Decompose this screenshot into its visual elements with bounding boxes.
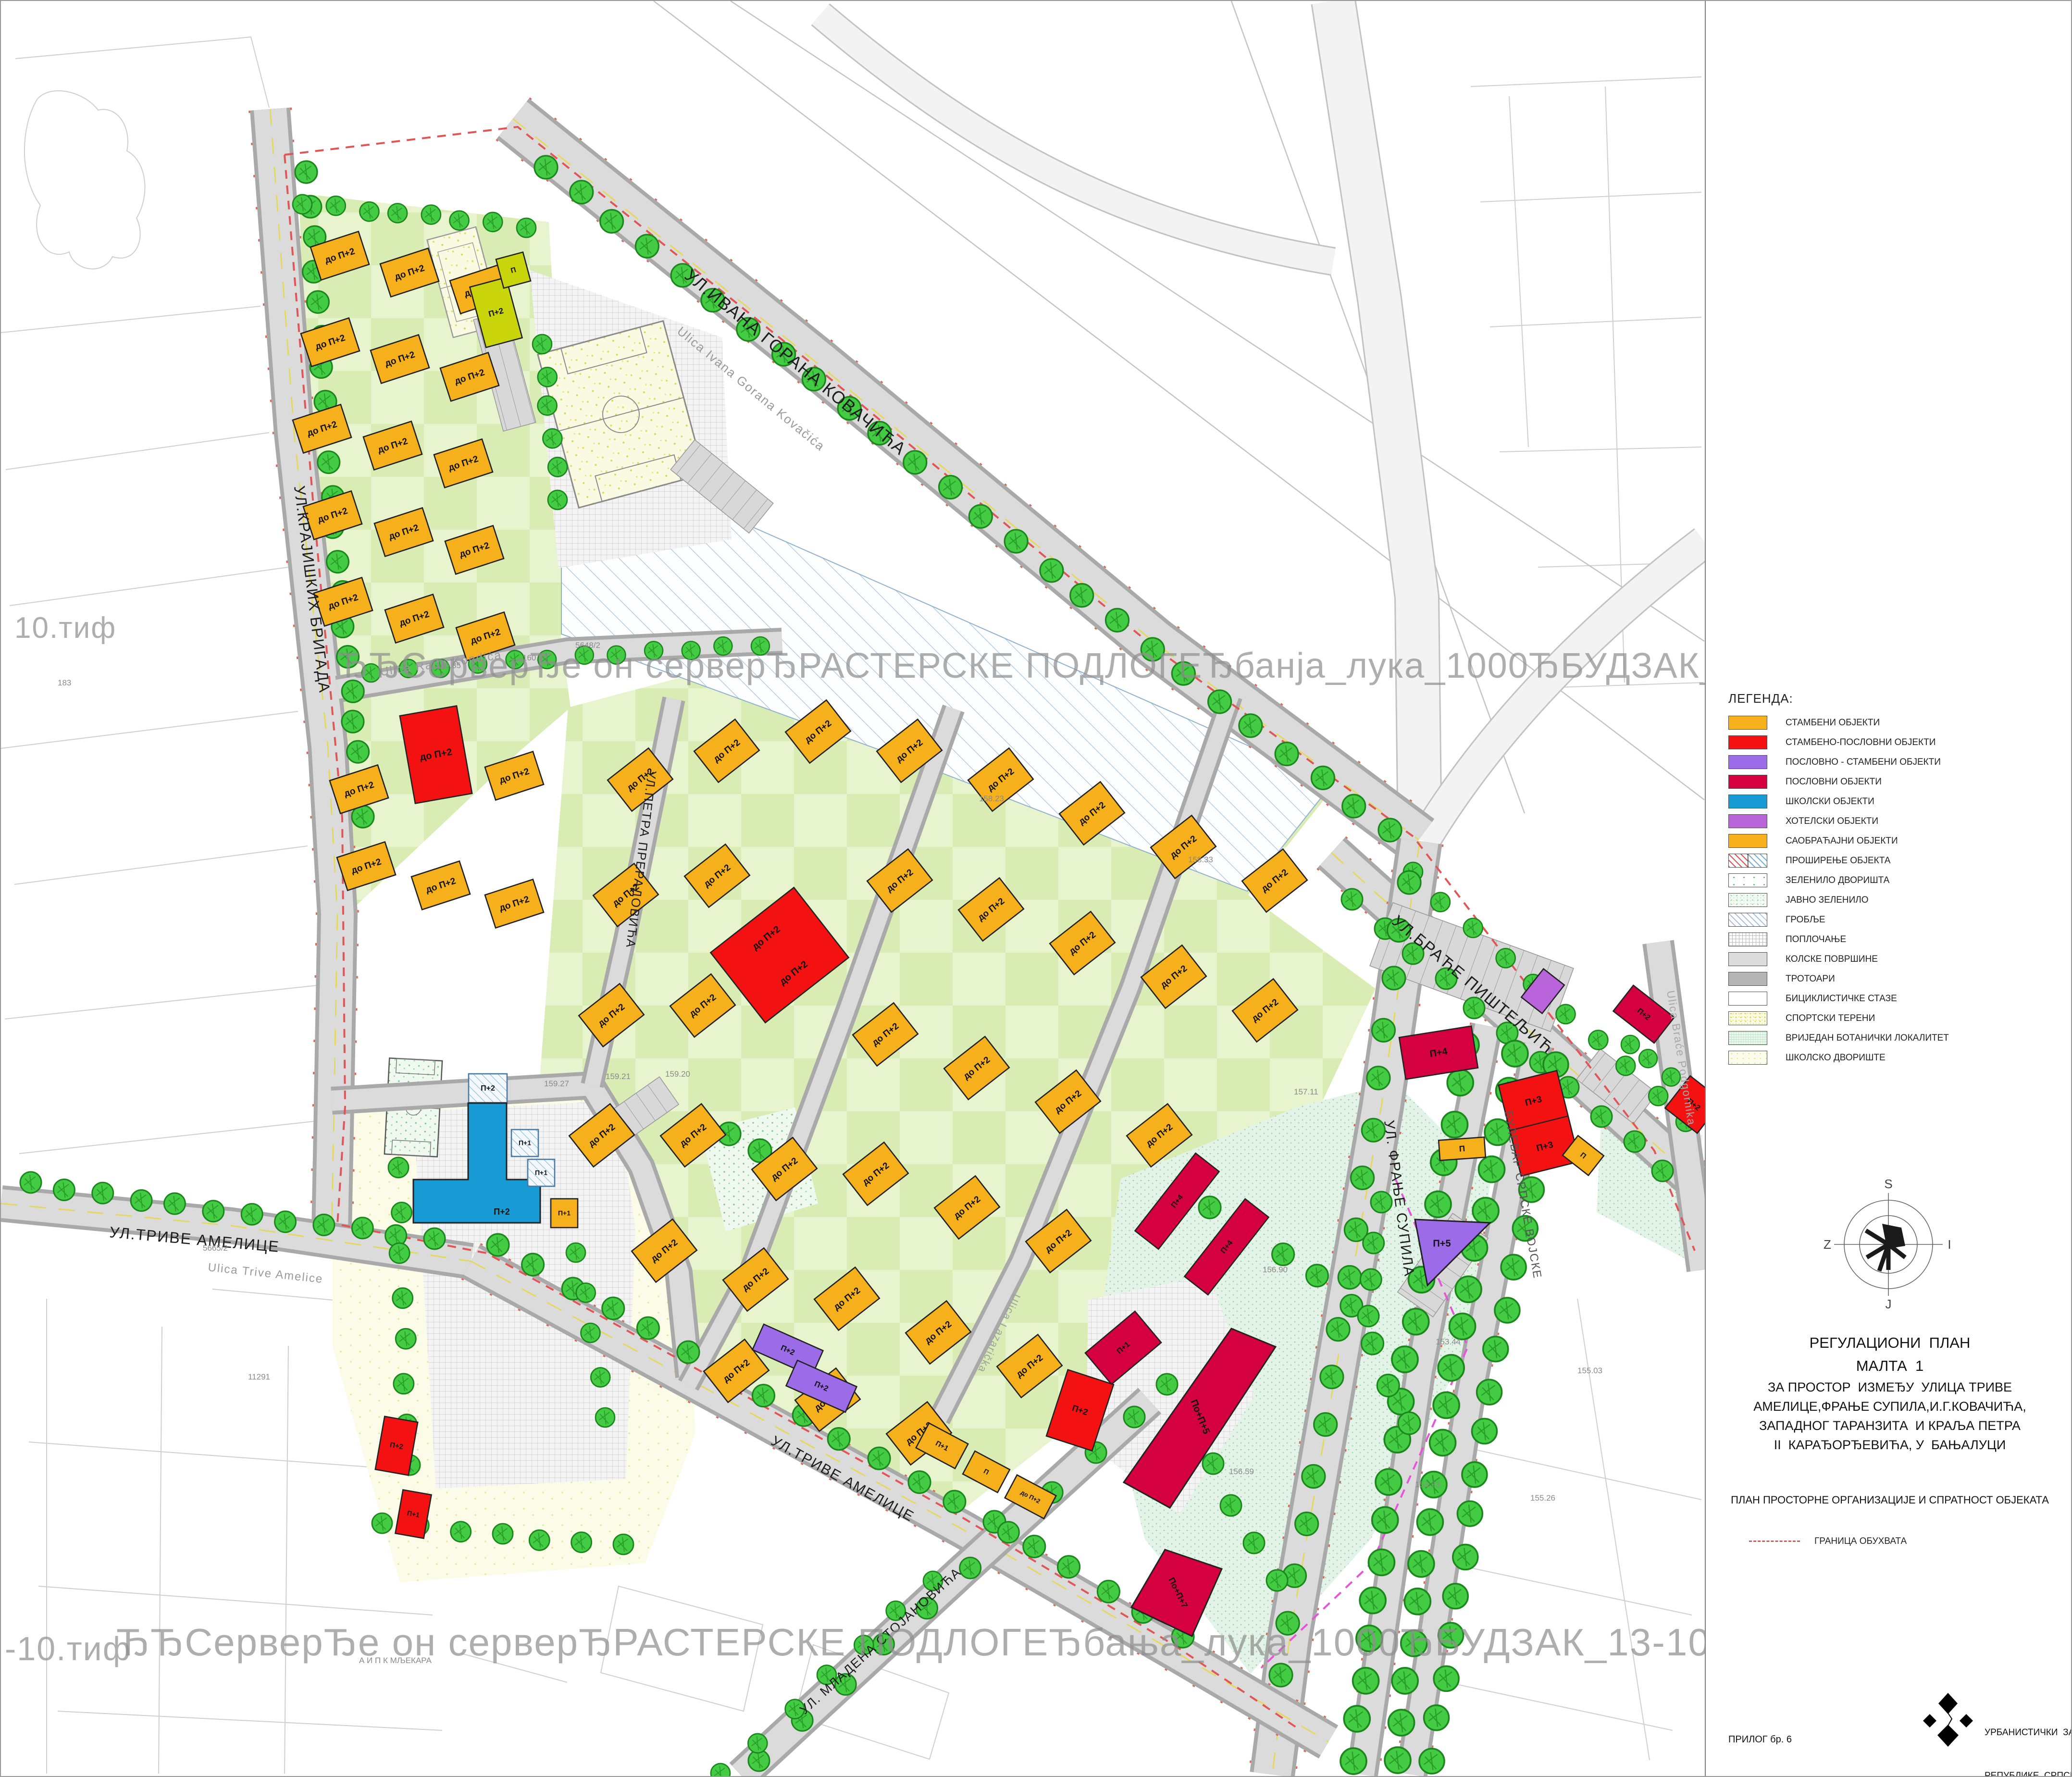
tree-icon [1314, 1413, 1337, 1436]
tree-icon [1243, 1532, 1265, 1553]
tree-icon [529, 1530, 549, 1550]
tree-icon [1097, 1580, 1119, 1603]
tree-icon [347, 741, 369, 763]
legend-swatch-5 [1728, 814, 1767, 828]
tree-icon [1311, 766, 1334, 789]
legend-item-label: ПОСЛОВНО - СТАМБЕНИ ОБЈЕКТИ [1786, 757, 1941, 768]
spot-label: 159.27 [544, 1079, 569, 1088]
spot-label: 183 [58, 678, 71, 687]
parcel-line [25, 91, 145, 269]
tree-icon [1239, 714, 1262, 737]
tree-icon [293, 195, 312, 214]
tree-icon [1362, 1332, 1384, 1354]
legend-item-label: САОБРАЋАЈНИ ОБЈЕКТИ [1786, 836, 1898, 846]
tree-icon [517, 218, 536, 237]
plan-sheet: до П+2до П+2до П+2до П+2до П+2до П+2до П… [0, 0, 2072, 1777]
building-st: до П+2 [411, 861, 470, 910]
parcel-line [1509, 96, 1528, 447]
tree-icon [1338, 1266, 1361, 1289]
tree-icon [566, 1243, 585, 1262]
legend-item-label: ЈАВНО ЗЕЛЕНИЛО [1786, 895, 1869, 906]
tree-icon [748, 1734, 767, 1753]
compass-east-label: I [1948, 1237, 1951, 1252]
tree-icon [1591, 1106, 1612, 1127]
spot-label: 159.20 [665, 1069, 690, 1079]
legend-item: ШКОЛСКО ДВОРИШТЕ [1728, 1048, 2055, 1068]
legend-swatch-10 [1728, 913, 1767, 927]
legend-item: ПОПЛОЧАЊЕ [1728, 930, 2055, 949]
legend-swatch-8 [1728, 873, 1767, 887]
tree-icon [1220, 1495, 1241, 1516]
tree-icon [1447, 1069, 1473, 1095]
tree-icon [372, 1513, 392, 1533]
tree-icon [1363, 1232, 1384, 1254]
parcel-line [19, 1120, 327, 1154]
tree-icon [1372, 1507, 1398, 1533]
legend-swatch-17 [1728, 1051, 1767, 1065]
tree-icon [1501, 1255, 1526, 1280]
plan-subtitle: ПЛАН ПРОСТОРНЕ ОРГАНИЗАЦИЈЕ И СПРАТНОСТ … [1715, 1494, 2064, 1506]
tree-icon [1556, 1005, 1575, 1024]
tree-icon [392, 1203, 412, 1223]
legend-item: ХОТЕЛСКИ ОБЈЕКТИ [1728, 811, 2055, 831]
title-column: ЛЕГЕНДА: СТАМБЕНИ ОБЈЕКТИСТАМБЕНО-ПОСЛОВ… [1705, 1, 2072, 1777]
tree-icon [1398, 871, 1421, 894]
tree-icon [1462, 1462, 1487, 1487]
tree-icon [1377, 1374, 1399, 1396]
legend-item-label: ХОТЕЛСКИ ОБЈЕКТИ [1786, 816, 1878, 827]
tree-icon [939, 476, 962, 499]
plan-title: РЕГУЛАЦИОНИ ПЛАН [1715, 1331, 2064, 1354]
legend-item: КОЛСКЕ ПОВРШИНЕ [1728, 949, 2055, 969]
tree-icon [450, 211, 469, 230]
building-label: П+5 [1433, 1238, 1451, 1249]
tree-icon [570, 181, 593, 204]
tree-icon [548, 458, 567, 477]
compass-west-label: Z [1824, 1237, 1831, 1252]
tree-icon [1472, 1418, 1497, 1443]
tree-icon [600, 210, 623, 233]
tree-icon [1443, 1584, 1468, 1609]
parcel-line [1, 711, 298, 748]
legend-item-label: ЗЕЛЕНИЛО ДВОРИШТА [1786, 875, 1889, 886]
tree-icon [1502, 1041, 1528, 1067]
legend-item-label: ПОСЛОВНИ ОБЈЕКТИ [1786, 777, 1882, 787]
tree-icon [1199, 1196, 1221, 1218]
tree-icon [1208, 690, 1231, 713]
tree-icon [1455, 1276, 1481, 1302]
organization-block: УРБАНИСТИЧКИ ЗАВОД РЕПУБЛИКЕ СРПСКЕ,а.д.… [1985, 1697, 2072, 1777]
building-label: П+1 [558, 1209, 571, 1217]
tree-icon [1367, 1067, 1390, 1090]
parcel-line [6, 433, 269, 470]
legend-item-label: ВРИЈЕДАН БОТАНИЧКИ ЛОКАЛИТЕТ [1786, 1033, 1949, 1044]
tree-icon [1430, 1429, 1456, 1455]
tree-icon [92, 1182, 113, 1204]
tree-icon [1005, 530, 1028, 553]
spot-label: 153.23 [1415, 1480, 1440, 1489]
watermark-top: ЂЂСерверЂе он серверЂРАСТЕРСКЕ ПОДЛОГЕЂб… [337, 646, 1937, 685]
tree-icon [241, 1204, 262, 1225]
parcel-line [38, 1586, 433, 1615]
tree-icon [1457, 1501, 1482, 1526]
tree-icon [1483, 1337, 1508, 1362]
tree-icon [1652, 1160, 1673, 1181]
legend-swatch-14 [1728, 992, 1767, 1006]
parcel-line [15, 37, 269, 108]
legend-swatch-15 [1728, 1011, 1767, 1025]
tree-icon [1105, 609, 1129, 632]
tree-icon [20, 1172, 41, 1193]
tree-icon [396, 1329, 416, 1349]
plan-scope-line-4: II КАРАЂОРЂЕВИЋА, У БАЊАЛУЦИ [1715, 1435, 2064, 1454]
legend-item: ВРИЈЕДАН БОТАНИЧКИ ЛОКАЛИТЕТ [1728, 1028, 2055, 1048]
plan-scope-line-2: АМЕЛИЦЕ,ФРАЊЕ СУПИЛА,И.Г.КОВАЧИЋА, [1715, 1397, 2064, 1416]
tree-icon [969, 505, 992, 528]
tree-icon [1424, 1705, 1449, 1730]
tree-icon [1203, 1453, 1224, 1474]
tree-icon [1385, 1747, 1411, 1773]
tree-icon [1272, 1243, 1294, 1266]
tree-icon [1372, 1019, 1395, 1042]
spot-label: 156.59 [1229, 1467, 1254, 1476]
legend-item-label: ШКОЛСКО ДВОРИШТЕ [1786, 1053, 1886, 1063]
legend-swatch-4 [1728, 795, 1767, 808]
tree-icon [522, 1254, 544, 1276]
legend-item: ТРОТОАРИ [1728, 969, 2055, 989]
boundary-dash-icon [1749, 1541, 1800, 1542]
legend-swatch-7 [1728, 854, 1767, 868]
compass-north-label: S [1884, 1180, 1892, 1191]
tree-icon [591, 1368, 610, 1387]
plan-name: МАЛТА 1 [1715, 1354, 2064, 1378]
legend-swatch-12 [1728, 952, 1767, 966]
compass-rose: S J Z I [1824, 1180, 1953, 1309]
legend-item: ШКОЛСКИ ОБЈЕКТИ [1728, 792, 2055, 811]
tree-icon [828, 1428, 850, 1450]
tree-icon [53, 1180, 74, 1201]
footer-attachment: ПРИЛОГ бр. 6 РАЗМЈЕРА 1:1000 [1728, 1702, 1810, 1777]
spot-label: 11291 [248, 1372, 270, 1381]
spot-label: 156.90 [1263, 1265, 1288, 1274]
tree-icon [1433, 1392, 1459, 1418]
tree-icon [1442, 1112, 1468, 1138]
spot-label: 5665/2 [203, 1243, 228, 1253]
tree-icon [394, 1374, 414, 1394]
legend-swatch-3 [1728, 775, 1767, 789]
tree-icon [1306, 1265, 1328, 1287]
parcel-line [5, 985, 317, 1019]
title-block: РЕГУЛАЦИОНИ ПЛАН МАЛТА 1 ЗА ПРОСТОР ИЗМЕ… [1715, 1331, 2064, 1547]
tree-icon [576, 1283, 596, 1303]
transit-line [731, 1, 1704, 641]
tree-icon [1340, 1748, 1366, 1774]
legend-item: ПРОШИРЕЊЕ ОБЈЕКТА [1728, 851, 2055, 870]
tree-icon [635, 235, 658, 258]
tree-icon [1275, 743, 1298, 766]
tree-icon [1376, 1469, 1402, 1495]
tree-icon [360, 202, 379, 221]
legend-swatch-13 [1728, 972, 1767, 986]
parcel-line [58, 1711, 442, 1730]
tree-icon [908, 1471, 931, 1493]
legend-swatch-16 [1728, 1031, 1767, 1045]
tree-icon [1588, 1031, 1608, 1050]
compass-south-label: J [1886, 1297, 1892, 1309]
tree-icon [1156, 1374, 1178, 1395]
building-label: П+2 [494, 1207, 509, 1217]
tree-icon [538, 396, 557, 415]
building-pr: П+2 [469, 1074, 507, 1103]
building-label: П [1459, 1144, 1465, 1154]
tree-icon [164, 1193, 185, 1214]
legend-item-label: СПОРТСКИ ТЕРЕНИ [1786, 1013, 1875, 1024]
parcel-line [1500, 447, 1701, 452]
tree-icon [1378, 819, 1402, 842]
legend-item: ПОСЛОВНО - СТАМБЕНИ ОБЈЕКТИ [1728, 752, 2055, 772]
tree-icon [1389, 1710, 1414, 1736]
parcel-line [159, 1327, 162, 1774]
legend-item: САОБРАЋАЈНИ ОБЈЕКТИ [1728, 831, 2055, 851]
spot-label: 157.11 [1294, 1087, 1318, 1096]
tree-icon [1434, 1666, 1459, 1691]
tree-icon [342, 710, 364, 733]
tree-icon [534, 156, 558, 179]
building-st: П [1439, 1137, 1486, 1161]
legend-item: СТАМБЕНИ ОБЈЕКТИ [1728, 713, 2055, 733]
tree-icon [868, 1447, 890, 1469]
building-st: П+1 [551, 1199, 578, 1228]
legend-item: БИЦИКЛИСТИЧКЕ СТАЗЕ [1728, 989, 2055, 1008]
tree-icon [1450, 1314, 1476, 1340]
legend-item-label: ТРОТОАРИ [1786, 974, 1835, 984]
attachment-number: ПРИЛОГ бр. 6 [1728, 1732, 1810, 1747]
tree-icon [1477, 1379, 1502, 1404]
tree-icon [1473, 1198, 1499, 1224]
tree-icon [1479, 1156, 1505, 1182]
tree-icon [1266, 1570, 1288, 1591]
street-label: Ulica Trive Amelice [207, 1261, 323, 1286]
tree-icon [1023, 1535, 1045, 1557]
boundary-legend-row: ГРАНИЦА ОБУХВАТА [1715, 1536, 2064, 1547]
legend-item: ПОСЛОВНИ ОБЈЕКТИ [1728, 772, 2055, 792]
tree-icon [1358, 1305, 1379, 1327]
spot-label: 158.23 [979, 794, 1004, 803]
legend-swatch-2 [1728, 755, 1767, 769]
tree-icon [1058, 1556, 1080, 1578]
legend-item-label: СТАМБЕНИ ОБЈЕКТИ [1786, 718, 1880, 728]
tree-icon [1360, 1269, 1381, 1290]
tree-icon [1382, 967, 1405, 990]
legend-swatch-9 [1728, 893, 1767, 907]
peripheral-road [1333, 1, 1420, 840]
tree-icon [1368, 1549, 1394, 1575]
tree-icon [1342, 795, 1365, 818]
tree-icon [1302, 1465, 1325, 1488]
org-line-1: УРБАНИСТИЧКИ ЗАВОД [1985, 1726, 2072, 1740]
spot-label: 159.21 [606, 1072, 631, 1081]
tree-icon [1040, 559, 1063, 582]
building-label: П+1 [519, 1139, 531, 1147]
legend-item: ЈАВНО ЗЕЛЕНИЛО [1728, 890, 2055, 910]
tree-icon [637, 1317, 659, 1339]
parcel-line [1, 306, 261, 333]
tree-icon [1496, 948, 1515, 968]
tree-icon [1392, 1346, 1418, 1372]
tree-icon [307, 291, 329, 313]
tree-icon [613, 1534, 633, 1554]
tree-icon [275, 1211, 296, 1232]
tree-icon [422, 205, 441, 224]
legend-item: ЗЕЛЕНИЛО ДВОРИШТА [1728, 870, 2055, 890]
tree-icon [393, 1288, 413, 1308]
tree-icon [295, 161, 317, 183]
watermark-left-top: 10.тиф [14, 611, 116, 645]
tree-icon [602, 1297, 624, 1319]
tree-icon [1392, 1668, 1418, 1694]
tree-icon [711, 1764, 730, 1777]
tree-icon [1403, 1309, 1429, 1335]
tree-icon [1408, 1551, 1434, 1577]
tree-icon [677, 1341, 699, 1363]
legend-item-label: ГРОБЉЕ [1786, 915, 1825, 925]
tree-icon [752, 1385, 774, 1407]
tree-icon [1353, 1668, 1379, 1694]
spot-label: 153.44 [1436, 1337, 1461, 1346]
legend-item-label: БИЦИКЛИСТИЧКЕ СТАЗЕ [1786, 994, 1897, 1004]
tree-icon [1624, 1131, 1645, 1152]
legend-item-label: КОЛСКЕ ПОВРШИНЕ [1786, 954, 1878, 965]
tree-icon [1341, 889, 1363, 910]
tree-icon [131, 1190, 152, 1211]
tree-icon [493, 1524, 513, 1544]
tree-icon [385, 1225, 407, 1246]
building-pr: П+1 [511, 1130, 538, 1156]
tree-icon [326, 196, 346, 215]
tree-icon [1438, 1355, 1464, 1381]
tree-icon [1417, 1509, 1443, 1535]
legend-item-label: СТАМБЕНО-ПОСЛОВНИ ОБЈЕКТИ [1786, 737, 1936, 748]
tree-icon [1070, 584, 1093, 607]
tree-icon [1464, 919, 1483, 938]
tree-icon [1649, 1086, 1668, 1106]
tree-icon [596, 1408, 615, 1427]
tree-icon [1419, 1749, 1444, 1774]
peripheral-road [1424, 542, 1704, 841]
building-st: до П+2 [485, 880, 544, 928]
spot-label: 155.26 [1530, 1493, 1555, 1503]
plan-scope-line-3: ЗАПАДНОГ ТАРАНЗИТА И КРАЉА ПЕТРА [1715, 1416, 2064, 1435]
building-label: П+1 [535, 1169, 547, 1177]
legend-item: СТАМБЕНО-ПОСЛОВНИ ОБЈЕКТИ [1728, 733, 2055, 752]
tree-icon [543, 429, 562, 448]
tree-icon [1453, 1544, 1478, 1569]
watermark-bottom: ЂЂСерверЂе он серверЂРАСТЕРСКЕ ПОДЛОГЕЂб… [116, 1621, 1873, 1664]
tree-icon [1616, 1056, 1635, 1075]
tree-icon [533, 335, 552, 354]
org-line-2: РЕПУБЛИКЕ СРПСКЕ,а.д. [1985, 1769, 2072, 1777]
tree-icon [1124, 1406, 1145, 1428]
tree-icon [1621, 1035, 1639, 1054]
peripheral-road-edge [820, 14, 1333, 261]
tree-icon [1360, 1588, 1386, 1614]
tree-icon [388, 203, 407, 223]
tree-icon [581, 1323, 600, 1342]
parcel-line [1480, 192, 1701, 202]
tree-icon [1371, 1192, 1392, 1213]
tree-icon [203, 1201, 224, 1222]
legend-title: ЛЕГЕНДА: [1728, 691, 2055, 706]
tree-icon [1639, 1049, 1657, 1068]
tree-icon [1351, 1166, 1374, 1189]
building-pr: П+1 [528, 1159, 555, 1186]
legend-swatch-6 [1728, 834, 1767, 848]
tree-icon [318, 451, 340, 473]
tree-icon [1295, 1512, 1318, 1535]
tree-icon [1269, 1664, 1292, 1687]
peripheral-road [820, 14, 1333, 261]
tree-icon [998, 1522, 1019, 1543]
legend-item-label: ПРОШИРЕЊЕ ОБЈЕКТА [1786, 856, 1890, 866]
tree-icon [451, 1522, 471, 1542]
tree-icon [1327, 1318, 1350, 1341]
legend-swatch-11 [1728, 932, 1767, 946]
spot-label: 155.03 [1577, 1366, 1602, 1375]
building-label: П+2 [481, 1084, 495, 1093]
legend-item-label: ПОПЛОЧАЊЕ [1786, 934, 1846, 945]
plan-scope-line-1: ЗА ПРОСТОР ИЗМЕЂУ УЛИЦА ТРИВЕ [1715, 1378, 2064, 1397]
legend-swatch-0 [1728, 716, 1767, 730]
parcel-line [14, 846, 308, 884]
tree-icon [388, 1157, 409, 1178]
tree-icon [1344, 1706, 1370, 1732]
parcel-line [285, 1346, 288, 1774]
parcel-line [1471, 77, 1701, 87]
tree-icon [326, 551, 348, 573]
tree-icon [487, 1234, 509, 1256]
tree-icon [1398, 1412, 1420, 1434]
legend-swatch-1 [1728, 735, 1767, 749]
watermark-left-bottom: -10.тиф [5, 1630, 131, 1667]
tree-icon [571, 1532, 592, 1553]
legend-item-label: ШКОЛСКИ ОБЈЕКТИ [1786, 796, 1874, 807]
urbanisticki-zavod-logo-icon [1917, 1689, 1980, 1752]
tree-icon [538, 367, 557, 386]
tree-icon [1404, 1589, 1430, 1615]
tree-icon [1425, 1192, 1451, 1218]
legend: ЛЕГЕНДА: СТАМБЕНИ ОБЈЕКТИСТАМБЕНО-ПОСЛОВ… [1728, 691, 2055, 1068]
tree-icon [424, 1228, 445, 1249]
tree-icon [352, 1218, 373, 1239]
tree-icon [483, 212, 502, 232]
tree-icon [1495, 1298, 1520, 1323]
tree-icon [1320, 1366, 1343, 1389]
tree-icon [943, 1491, 966, 1513]
parcel-line [10, 567, 288, 606]
legend-item: ГРОБЉЕ [1728, 910, 2055, 930]
tree-icon [1431, 893, 1450, 912]
tree-icon [548, 490, 567, 509]
tree-icon [389, 1243, 409, 1263]
legend-item: СПОРТСКИ ТЕРЕНИ [1728, 1008, 2055, 1028]
tree-icon [313, 1214, 335, 1235]
boundary-label: ГРАНИЦА ОБУХВАТА [1814, 1536, 1907, 1546]
tree-icon [904, 451, 927, 474]
spot-label: 158.33 [1188, 855, 1213, 864]
